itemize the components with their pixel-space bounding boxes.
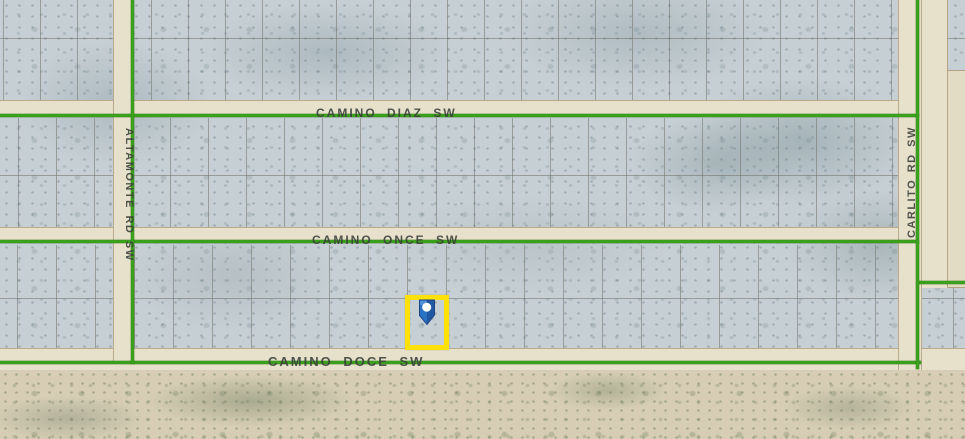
parcel-grid-top-band bbox=[0, 0, 965, 100]
road-label-camino-diaz: CAMINO DIAZ SW bbox=[316, 106, 457, 120]
satellite-parcel-map[interactable]: CAMINO DIAZ SW CAMINO ONCE SW CAMINO DOC… bbox=[0, 0, 965, 439]
right-edge-parcel-tan bbox=[922, 0, 948, 288]
road-label-carlito: CARLITO RD SW bbox=[905, 126, 919, 238]
boundary-line-camino-once bbox=[0, 240, 919, 243]
road-label-camino-once: CAMINO ONCE SW bbox=[312, 233, 459, 247]
boundary-line-camino-diaz bbox=[0, 114, 919, 117]
road-camino-diaz bbox=[0, 100, 965, 115]
road-label-camino-doce: CAMINO DOCE SW bbox=[268, 355, 424, 369]
map-pin-icon[interactable] bbox=[418, 299, 436, 326]
road-label-altamonte: ALTAMONTE RD SW bbox=[122, 128, 136, 262]
parcel-grid-middle-band bbox=[0, 118, 965, 228]
parcel-grid-lower-band bbox=[0, 245, 965, 348]
boundary-line-camino-doce bbox=[0, 361, 921, 364]
desert-vegetation bbox=[0, 370, 965, 439]
road-camino-doce bbox=[0, 348, 965, 372]
right-edge-parcel-tan-2 bbox=[948, 70, 965, 288]
boundary-line-right-segment bbox=[917, 281, 965, 284]
